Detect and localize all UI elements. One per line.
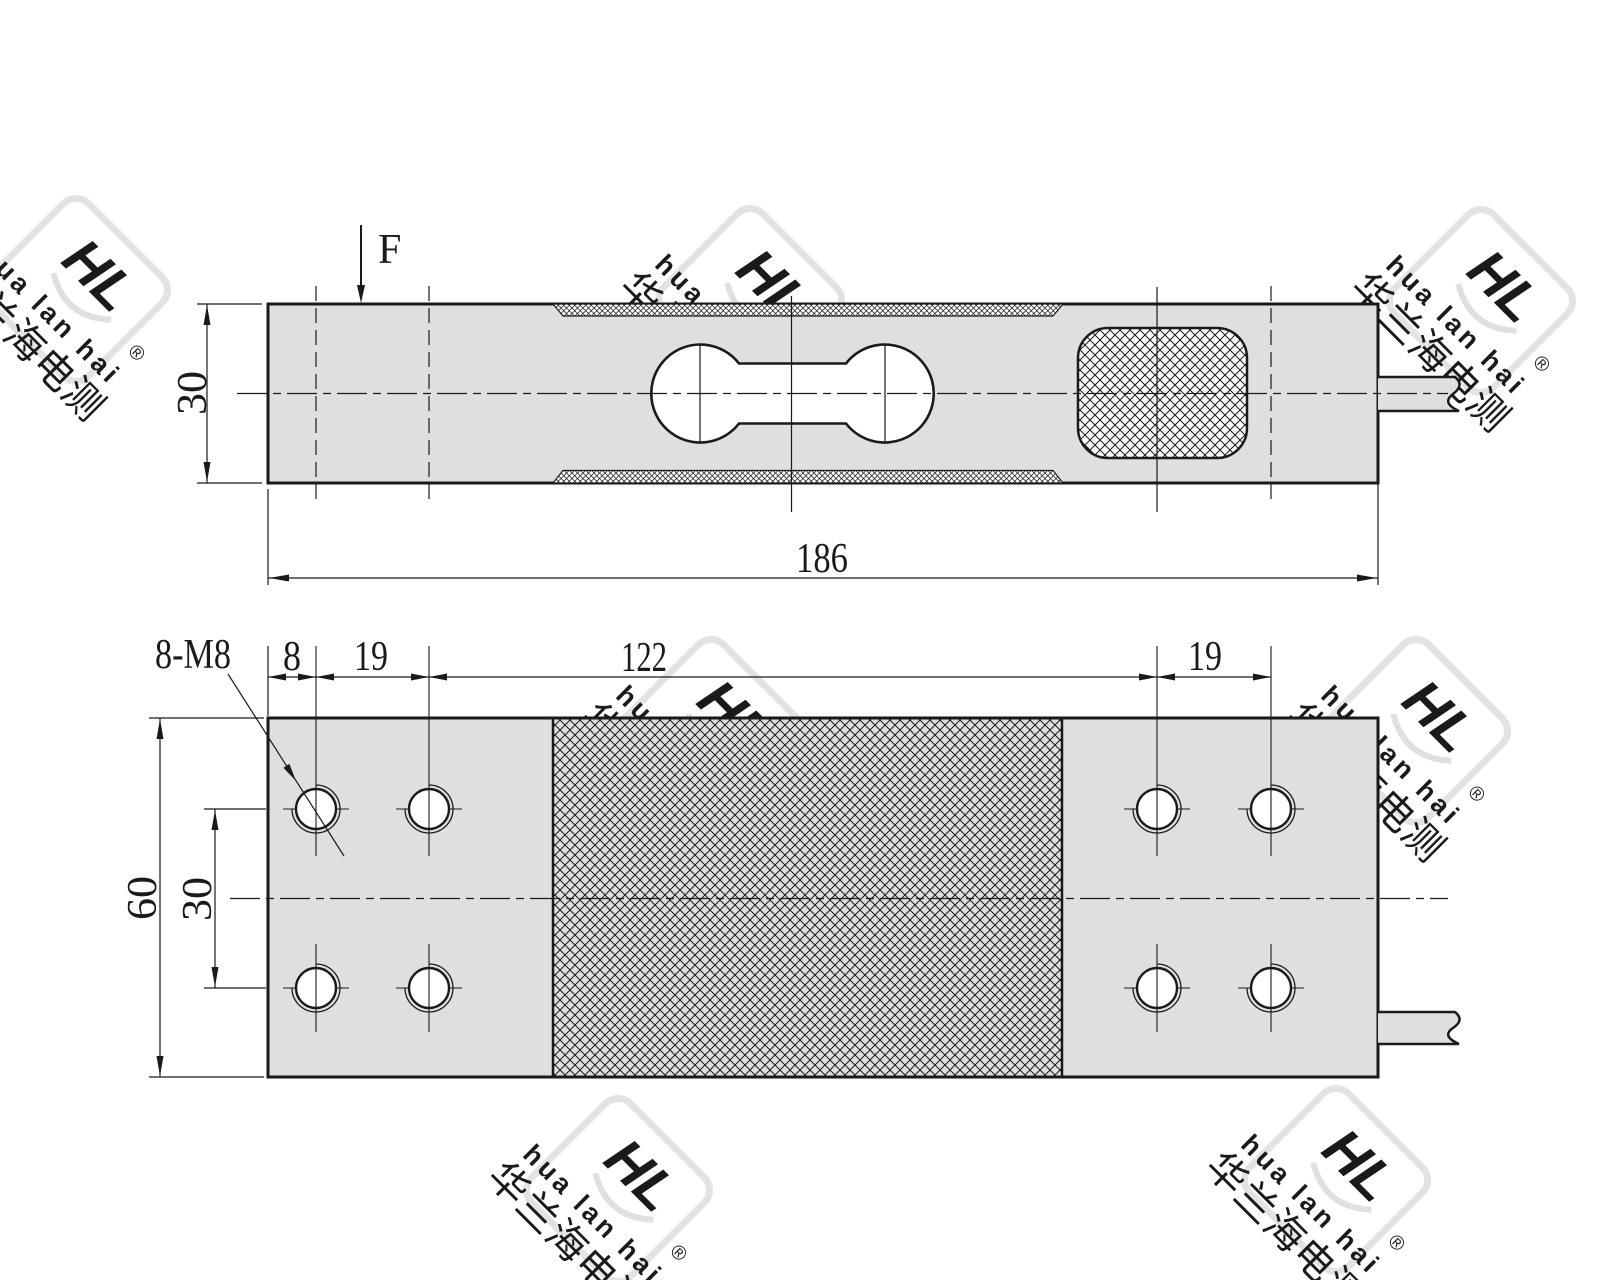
plan-hatch-region bbox=[553, 718, 1062, 1077]
top-dimension-chain: 8 19 122 19 bbox=[268, 634, 1271, 716]
side-length-label: 186 bbox=[796, 536, 848, 582]
drawing-sheet: HL hua lan hai ® 华兰海电测 bbox=[0, 0, 1600, 1280]
cable-plan-view bbox=[1378, 1012, 1460, 1044]
hole-pitch-right-label: 19 bbox=[1188, 634, 1222, 680]
watermark-tile bbox=[0, 176, 191, 430]
hole-pitch-left-label: 19 bbox=[354, 634, 388, 680]
side-view: F 30 186 bbox=[170, 225, 1460, 585]
top-seal-strip bbox=[553, 304, 1063, 316]
engineering-drawing: HL hua lan hai ® 华兰海电测 bbox=[0, 0, 1600, 1280]
force-label: F bbox=[378, 227, 401, 273]
side-height-label: 30 bbox=[170, 371, 216, 415]
force-arrow bbox=[357, 225, 365, 303]
center-span-label: 122 bbox=[621, 635, 667, 681]
edge-offset-label: 8 bbox=[283, 634, 301, 680]
plan-view: 8 19 122 19 60 30 8-M8 bbox=[120, 632, 1460, 1077]
bottom-seal-strip bbox=[553, 471, 1063, 484]
thread-callout-label: 8-M8 bbox=[155, 632, 231, 678]
plan-width-label: 60 bbox=[120, 876, 166, 920]
watermark-tile bbox=[1197, 1066, 1451, 1280]
force-arrowhead-icon bbox=[357, 285, 365, 303]
row-spacing-label: 30 bbox=[175, 877, 221, 921]
watermark-tile bbox=[479, 1076, 733, 1280]
